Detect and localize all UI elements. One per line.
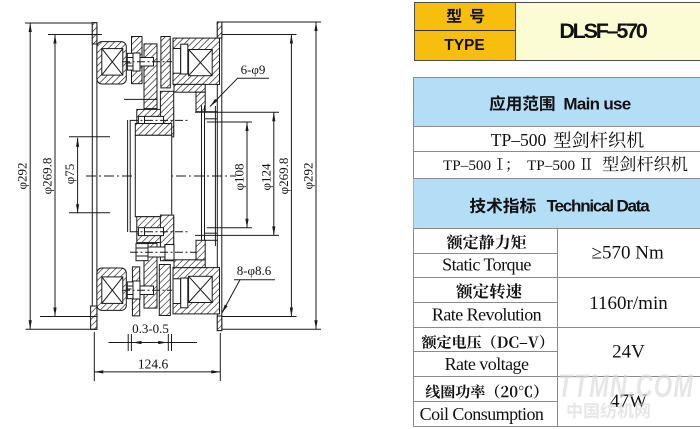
svg-text:1160r/min: 1160r/min bbox=[589, 293, 668, 314]
svg-text:φ269.8: φ269.8 bbox=[276, 158, 291, 195]
svg-text:TTMN.COM: TTMN.COM bbox=[558, 367, 694, 404]
svg-text:6-φ9: 6-φ9 bbox=[241, 62, 266, 77]
svg-text:TYPE: TYPE bbox=[444, 37, 484, 54]
svg-text:φ75: φ75 bbox=[62, 164, 77, 185]
svg-text:TP–500: TP–500 bbox=[527, 157, 576, 174]
svg-text:Coil Consumption: Coil Consumption bbox=[420, 404, 544, 424]
svg-text:φ292: φ292 bbox=[15, 162, 30, 189]
svg-text:φ292: φ292 bbox=[301, 162, 316, 189]
svg-text:TP–500: TP–500 bbox=[491, 130, 547, 150]
svg-text:DLSF–570: DLSF–570 bbox=[559, 19, 648, 43]
svg-text:TP–500: TP–500 bbox=[443, 157, 492, 174]
svg-text:Rate Revolution: Rate Revolution bbox=[432, 305, 542, 325]
svg-text:≥570 Nm: ≥570 Nm bbox=[592, 242, 664, 263]
svg-text:124.6: 124.6 bbox=[138, 357, 169, 372]
svg-text:φ124: φ124 bbox=[258, 163, 273, 191]
svg-text:0.3-0.5: 0.3-0.5 bbox=[132, 321, 169, 336]
svg-text:Static Torque: Static Torque bbox=[442, 255, 531, 275]
svg-text:Main use: Main use bbox=[563, 95, 630, 114]
svg-text:Rate voltage: Rate voltage bbox=[445, 354, 529, 374]
svg-text:8-φ8.6: 8-φ8.6 bbox=[237, 263, 272, 278]
svg-text:24V: 24V bbox=[612, 342, 645, 363]
svg-text:φ269.8: φ269.8 bbox=[40, 158, 55, 195]
svg-text:Technical Data: Technical Data bbox=[547, 197, 651, 216]
svg-text:φ108: φ108 bbox=[232, 163, 247, 190]
